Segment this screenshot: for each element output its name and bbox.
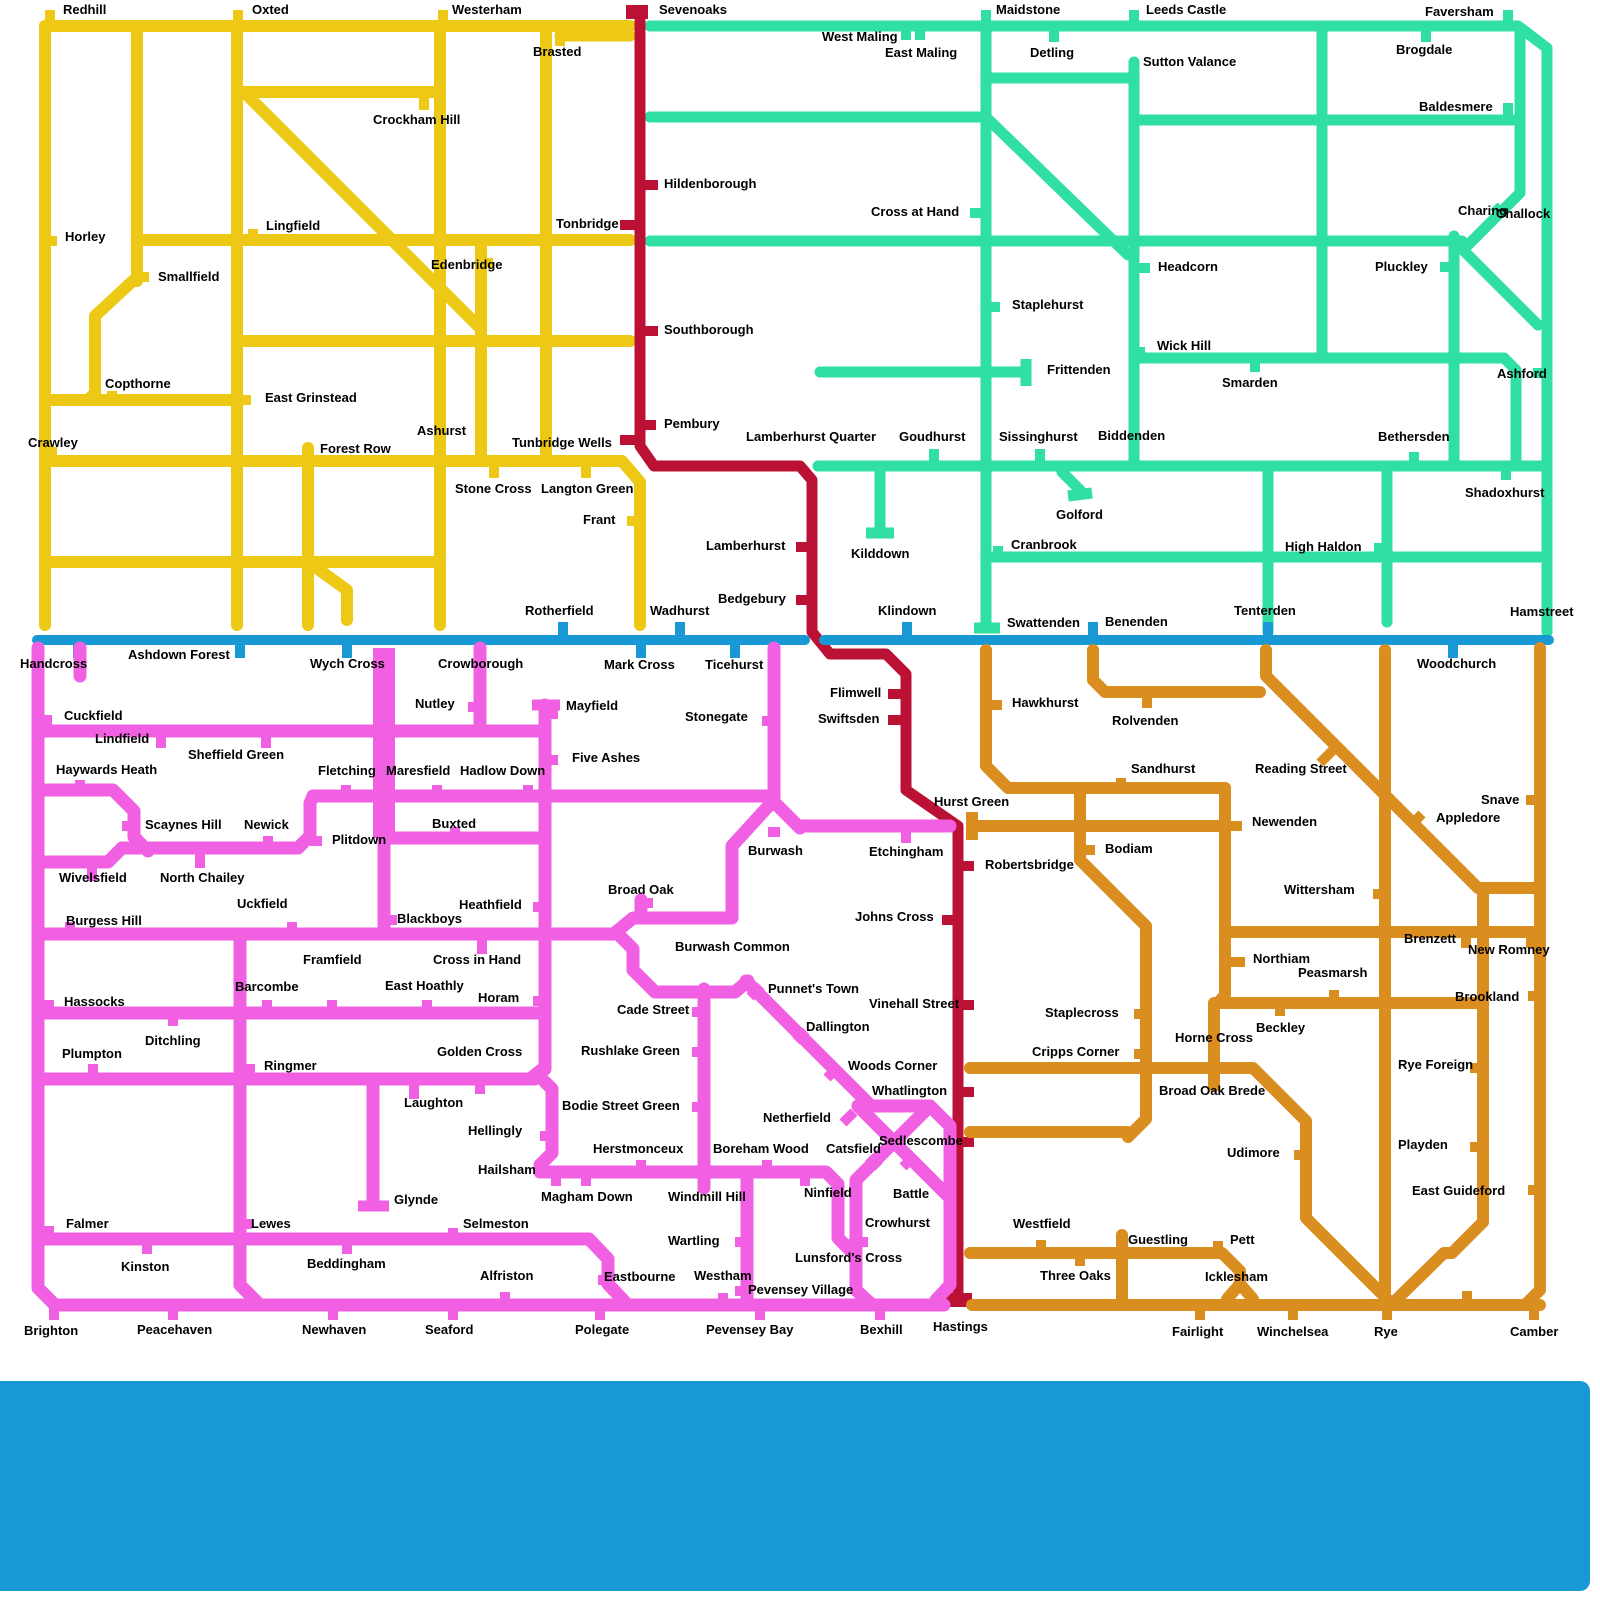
svg-text:Lewes: Lewes (251, 1216, 291, 1231)
svg-text:Herstmonceux: Herstmonceux (593, 1141, 684, 1156)
svg-text:Bethersden: Bethersden (1378, 429, 1450, 444)
svg-text:Icklesham: Icklesham (1205, 1269, 1268, 1284)
svg-text:Edenbridge: Edenbridge (431, 257, 503, 272)
svg-text:Tunbridge Wells: Tunbridge Wells (512, 435, 612, 450)
svg-text:Forest Row: Forest Row (320, 441, 392, 456)
svg-text:Cripps Corner: Cripps Corner (1032, 1044, 1119, 1059)
svg-text:Whatlington: Whatlington (872, 1083, 947, 1098)
svg-text:Plitdown: Plitdown (332, 832, 386, 847)
svg-text:Windmill Hill: Windmill Hill (668, 1189, 746, 1204)
svg-text:Hildenborough: Hildenborough (664, 176, 756, 191)
svg-text:Woodchurch: Woodchurch (1417, 656, 1496, 671)
svg-text:Hellingly: Hellingly (468, 1123, 523, 1138)
svg-text:Mark Cross: Mark Cross (604, 657, 675, 672)
svg-text:Faversham: Faversham (1425, 4, 1494, 19)
svg-text:Westerham: Westerham (452, 2, 522, 17)
svg-text:Sevenoaks: Sevenoaks (659, 2, 727, 17)
svg-text:Broad Oak Brede: Broad Oak Brede (1159, 1083, 1265, 1098)
svg-text:Sedlescombe: Sedlescombe (879, 1133, 963, 1148)
svg-text:Hamstreet: Hamstreet (1510, 604, 1574, 619)
svg-text:Rotherfield: Rotherfield (525, 603, 594, 618)
svg-text:Haywards Heath: Haywards Heath (56, 762, 157, 777)
svg-text:Lindfield: Lindfield (95, 731, 149, 746)
svg-text:Rolvenden: Rolvenden (1112, 713, 1179, 728)
svg-text:Hurst Green: Hurst Green (934, 794, 1009, 809)
svg-text:Fairlight: Fairlight (1172, 1324, 1224, 1339)
svg-text:Lingfield: Lingfield (266, 218, 320, 233)
svg-text:Appledore: Appledore (1436, 810, 1500, 825)
svg-text:Selmeston: Selmeston (463, 1216, 529, 1231)
svg-text:Etchingham: Etchingham (869, 844, 943, 859)
svg-text:Buxted: Buxted (432, 816, 476, 831)
svg-text:Northiam: Northiam (1253, 951, 1310, 966)
svg-text:Blackboys: Blackboys (397, 911, 462, 926)
svg-text:Snave: Snave (1481, 792, 1519, 807)
svg-text:Scaynes Hill: Scaynes Hill (145, 817, 222, 832)
svg-text:Staplehurst: Staplehurst (1012, 297, 1084, 312)
svg-text:Uckfield: Uckfield (237, 896, 288, 911)
svg-text:Burwash: Burwash (748, 843, 803, 858)
svg-text:Tenterden: Tenterden (1234, 603, 1296, 618)
svg-text:East Maling: East Maling (885, 45, 957, 60)
svg-text:Horam: Horam (478, 990, 519, 1005)
svg-text:Punnet's Town: Punnet's Town (768, 981, 859, 996)
svg-text:Kilddown: Kilddown (851, 546, 910, 561)
svg-text:Bexhill: Bexhill (860, 1322, 903, 1337)
svg-text:Beddingham: Beddingham (307, 1256, 386, 1271)
svg-text:Handcross: Handcross (20, 656, 87, 671)
svg-text:Catsfield: Catsfield (826, 1141, 881, 1156)
svg-text:Staplecross: Staplecross (1045, 1005, 1119, 1020)
svg-text:Boreham Wood: Boreham Wood (713, 1141, 809, 1156)
svg-text:Lunsford's Cross: Lunsford's Cross (795, 1250, 902, 1265)
svg-text:Falmer: Falmer (66, 1216, 109, 1231)
svg-text:Smarden: Smarden (1222, 375, 1278, 390)
svg-text:Cade Street: Cade Street (617, 1002, 690, 1017)
svg-text:Sheffield Green: Sheffield Green (188, 747, 284, 762)
svg-text:Westfield: Westfield (1013, 1216, 1071, 1231)
svg-text:Woods Corner: Woods Corner (848, 1058, 937, 1073)
svg-text:Newick: Newick (244, 817, 290, 832)
svg-text:Peacehaven: Peacehaven (137, 1322, 212, 1337)
svg-text:Ringmer: Ringmer (264, 1058, 317, 1073)
svg-text:Westham: Westham (694, 1268, 752, 1283)
svg-text:Stone Cross: Stone Cross (455, 481, 532, 496)
svg-text:Golford: Golford (1056, 507, 1103, 522)
svg-text:Rye Foreign: Rye Foreign (1398, 1057, 1473, 1072)
svg-text:Challock: Challock (1496, 206, 1551, 221)
svg-text:Brookland: Brookland (1455, 989, 1519, 1004)
svg-text:Five Ashes: Five Ashes (572, 750, 640, 765)
svg-text:Swiftsden: Swiftsden (818, 711, 879, 726)
svg-text:Bodie Street Green: Bodie Street Green (562, 1098, 680, 1113)
svg-text:Laughton: Laughton (404, 1095, 463, 1110)
svg-text:Cross in Hand: Cross in Hand (433, 952, 521, 967)
svg-text:East Hoathly: East Hoathly (385, 978, 465, 993)
svg-text:Battle: Battle (893, 1186, 929, 1201)
svg-text:Crockham Hill: Crockham Hill (373, 112, 460, 127)
svg-text:Polegate: Polegate (575, 1322, 629, 1337)
svg-text:Hawkhurst: Hawkhurst (1012, 695, 1079, 710)
svg-text:Smallfield: Smallfield (158, 269, 219, 284)
svg-text:East Grinstead: East Grinstead (265, 390, 357, 405)
svg-text:Ashford: Ashford (1497, 366, 1547, 381)
svg-text:Brenzett: Brenzett (1404, 931, 1457, 946)
svg-text:Wick Hill: Wick Hill (1157, 338, 1211, 353)
svg-text:Wadhurst: Wadhurst (650, 603, 710, 618)
svg-text:Barcombe: Barcombe (235, 979, 299, 994)
svg-text:Horley: Horley (65, 229, 106, 244)
svg-text:Brogdale: Brogdale (1396, 42, 1452, 57)
svg-text:Horne Cross: Horne Cross (1175, 1030, 1253, 1045)
svg-text:Brighton: Brighton (24, 1323, 78, 1338)
svg-text:Crowhurst: Crowhurst (865, 1215, 931, 1230)
svg-text:Mayfield: Mayfield (566, 698, 618, 713)
svg-text:Burgess Hill: Burgess Hill (66, 913, 142, 928)
svg-text:Ninfield: Ninfield (804, 1185, 852, 1200)
svg-text:Golden Cross: Golden Cross (437, 1044, 522, 1059)
svg-text:Reading Street: Reading Street (1255, 761, 1347, 776)
svg-text:Redhill: Redhill (63, 2, 106, 17)
svg-text:Ashurst: Ashurst (417, 423, 467, 438)
svg-text:Frant: Frant (583, 512, 616, 527)
svg-text:Pembury: Pembury (664, 416, 720, 431)
svg-text:Cuckfield: Cuckfield (64, 708, 123, 723)
svg-text:Sutton Valance: Sutton Valance (1143, 54, 1236, 69)
svg-text:Tonbridge: Tonbridge (556, 216, 619, 231)
svg-text:Seaford: Seaford (425, 1322, 473, 1337)
svg-text:Glynde: Glynde (394, 1192, 438, 1207)
svg-text:Robertsbridge: Robertsbridge (985, 857, 1074, 872)
svg-text:Wivelsfield: Wivelsfield (59, 870, 127, 885)
svg-text:Beckley: Beckley (1256, 1020, 1306, 1035)
svg-text:West Maling: West Maling (822, 29, 898, 44)
svg-text:Pevensey Village: Pevensey Village (748, 1282, 853, 1297)
svg-text:Langton Green: Langton Green (541, 481, 634, 496)
svg-text:East Guideford: East Guideford (1412, 1183, 1505, 1198)
svg-text:Hassocks: Hassocks (64, 994, 125, 1009)
svg-text:Wittersham: Wittersham (1284, 882, 1355, 897)
svg-text:Bedgebury: Bedgebury (718, 591, 787, 606)
svg-text:Kinston: Kinston (121, 1259, 169, 1274)
svg-text:Baldesmere: Baldesmere (1419, 99, 1493, 114)
svg-text:Klindown: Klindown (878, 603, 937, 618)
svg-text:Johns Cross: Johns Cross (855, 909, 934, 924)
svg-text:Goudhurst: Goudhurst (899, 429, 966, 444)
svg-text:Framfield: Framfield (303, 952, 362, 967)
svg-text:Hadlow Down: Hadlow Down (460, 763, 545, 778)
svg-text:Headcorn: Headcorn (1158, 259, 1218, 274)
svg-text:Sissinghurst: Sissinghurst (999, 429, 1078, 444)
svg-text:Burwash Common: Burwash Common (675, 939, 790, 954)
svg-text:Newhaven: Newhaven (302, 1322, 366, 1337)
svg-text:Pluckley: Pluckley (1375, 259, 1429, 274)
svg-text:Winchelsea: Winchelsea (1257, 1324, 1329, 1339)
svg-text:Dallington: Dallington (806, 1019, 870, 1034)
svg-text:Magham Down: Magham Down (541, 1189, 633, 1204)
svg-text:Pevensey Bay: Pevensey Bay (706, 1322, 794, 1337)
svg-text:Pett: Pett (1230, 1232, 1255, 1247)
svg-text:Crawley: Crawley (28, 435, 79, 450)
svg-text:Lamberhurst Quarter: Lamberhurst Quarter (746, 429, 876, 444)
svg-text:Udimore: Udimore (1227, 1145, 1280, 1160)
svg-text:Playden: Playden (1398, 1137, 1448, 1152)
svg-text:Camber: Camber (1510, 1324, 1558, 1339)
svg-text:Flimwell: Flimwell (830, 685, 881, 700)
svg-text:Biddenden: Biddenden (1098, 428, 1165, 443)
svg-text:Rushlake Green: Rushlake Green (581, 1043, 680, 1058)
svg-text:Three Oaks: Three Oaks (1040, 1268, 1111, 1283)
svg-text:Peasmarsh: Peasmarsh (1298, 965, 1367, 980)
svg-text:Copthorne: Copthorne (105, 376, 171, 391)
svg-text:Heathfield: Heathfield (459, 897, 522, 912)
svg-text:Maresfield: Maresfield (386, 763, 450, 778)
svg-text:Stonegate: Stonegate (685, 709, 748, 724)
svg-text:Detling: Detling (1030, 45, 1074, 60)
svg-text:Netherfield: Netherfield (763, 1110, 831, 1125)
svg-text:Fletching: Fletching (318, 763, 376, 778)
svg-text:Vinehall Street: Vinehall Street (869, 996, 960, 1011)
svg-text:Nutley: Nutley (415, 696, 456, 711)
svg-text:Plumpton: Plumpton (62, 1046, 122, 1061)
svg-text:Shadoxhurst: Shadoxhurst (1465, 485, 1545, 500)
svg-text:Hailsham: Hailsham (478, 1162, 536, 1177)
svg-text:Oxted: Oxted (252, 2, 289, 17)
svg-text:Frittenden: Frittenden (1047, 362, 1111, 377)
svg-text:Southborough: Southborough (664, 322, 754, 337)
svg-text:Cross at Hand: Cross at Hand (871, 204, 959, 219)
svg-text:Ditchling: Ditchling (145, 1033, 201, 1048)
svg-text:Rye: Rye (1374, 1324, 1398, 1339)
svg-text:Benenden: Benenden (1105, 614, 1168, 629)
svg-text:Eastbourne: Eastbourne (604, 1269, 676, 1284)
svg-text:Alfriston: Alfriston (480, 1268, 534, 1283)
svg-text:Crowborough: Crowborough (438, 656, 523, 671)
svg-text:High Haldon: High Haldon (1285, 539, 1362, 554)
svg-text:Newenden: Newenden (1252, 814, 1317, 829)
svg-text:Bodiam: Bodiam (1105, 841, 1153, 856)
svg-text:Swattenden: Swattenden (1007, 615, 1080, 630)
svg-text:Cranbrook: Cranbrook (1011, 537, 1078, 552)
svg-text:Wych Cross: Wych Cross (310, 656, 385, 671)
svg-text:Sandhurst: Sandhurst (1131, 761, 1196, 776)
svg-text:Hastings: Hastings (933, 1319, 988, 1334)
svg-text:Wartling: Wartling (668, 1233, 720, 1248)
svg-text:Lamberhurst: Lamberhurst (706, 538, 786, 553)
svg-text:Guestling: Guestling (1128, 1232, 1188, 1247)
svg-text:Maidstone: Maidstone (996, 2, 1060, 17)
svg-text:Leeds Castle: Leeds Castle (1146, 2, 1226, 17)
svg-text:Ashdown Forest: Ashdown Forest (128, 647, 231, 662)
svg-text:Broad Oak: Broad Oak (608, 882, 675, 897)
svg-text:Brasted: Brasted (533, 44, 581, 59)
svg-text:New Romney: New Romney (1468, 942, 1550, 957)
svg-text:Ticehurst: Ticehurst (705, 657, 764, 672)
svg-text:North Chailey: North Chailey (160, 870, 245, 885)
